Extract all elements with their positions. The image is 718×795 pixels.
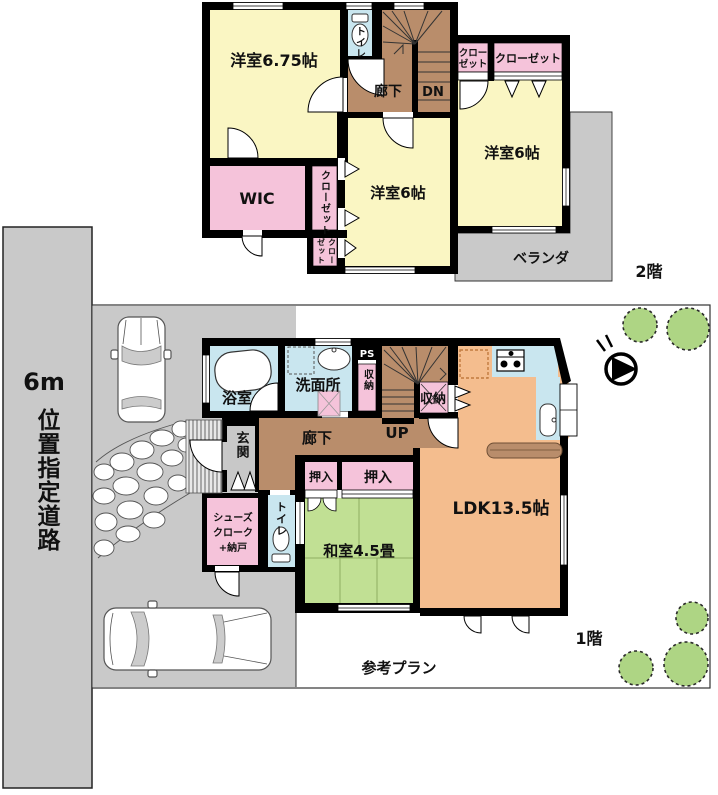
ldk-label: LDK13.5帖 (452, 498, 549, 519)
road-name-label: 位置指定道路 (33, 407, 61, 552)
floor-plan-page: 6m 位置指定道路 (0, 0, 718, 795)
plan-note-label: 参考プラン (361, 659, 436, 677)
bathtub-icon (213, 348, 273, 394)
closet-strip-label: クローゼット (319, 170, 331, 236)
floor-plan-drawing: 6m 位置指定道路 (0, 0, 718, 795)
toilet-2f-label: トイレ (354, 26, 366, 59)
oshiire-large-label: 押入 (364, 469, 392, 486)
room-6-right-label: 洋室6帖 (484, 144, 539, 162)
veranda-label: ベランダ (513, 250, 569, 267)
shoes-closet-label-1: シューズ (213, 511, 253, 524)
stairs-up-label: UP (385, 424, 408, 442)
tree-icon (676, 602, 708, 634)
tree-icon (667, 308, 709, 350)
storage-right-label: 収納 (420, 391, 446, 407)
car-bottom (104, 601, 271, 677)
tree-icon (664, 642, 708, 686)
closet-small-label-2: ゼット (459, 58, 488, 70)
entrance-label: 玄関 (234, 430, 250, 459)
toilet-1f-label: トイレ (275, 501, 288, 537)
tree-icon (619, 651, 653, 685)
closet-wide-label: クローゼット (495, 51, 561, 65)
road-width-label: 6m (23, 368, 65, 396)
storage-left-label: 収納 (362, 369, 374, 391)
hall-2f-label: 廊下 (374, 83, 402, 100)
stairs-down-label: DN (422, 85, 444, 100)
shoes-closet-label-2: クローク (213, 527, 253, 539)
room-675-label: 洋室6.75帖 (230, 51, 317, 70)
room-6-center-label: 洋室6帖 (370, 184, 425, 202)
wic-label: WIC (239, 189, 274, 208)
oshiire-small-label: 押入 (309, 469, 333, 484)
closet-small-label-1: クロー (459, 48, 488, 59)
shoes-closet-label-3: +納戸 (219, 541, 247, 554)
toilet-tank-icon (272, 554, 290, 562)
pipe-space-label: PS (360, 349, 375, 360)
closet-bottom-label-1: クロー (328, 238, 337, 265)
closet-bottom-label-2: ゼット (317, 237, 326, 265)
kitchen-counter-icon (487, 443, 562, 458)
bath-label: 浴室 (222, 389, 252, 407)
first-floor-label: 1階 (575, 629, 602, 648)
second-floor-label: 2階 (635, 262, 662, 281)
washitsu-label: 和室4.5畳 (323, 542, 395, 560)
car-top (111, 317, 171, 422)
tree-icon (623, 308, 657, 342)
washroom-label: 洗面所 (295, 376, 340, 394)
hall-1f-label: 廊下 (302, 429, 332, 447)
